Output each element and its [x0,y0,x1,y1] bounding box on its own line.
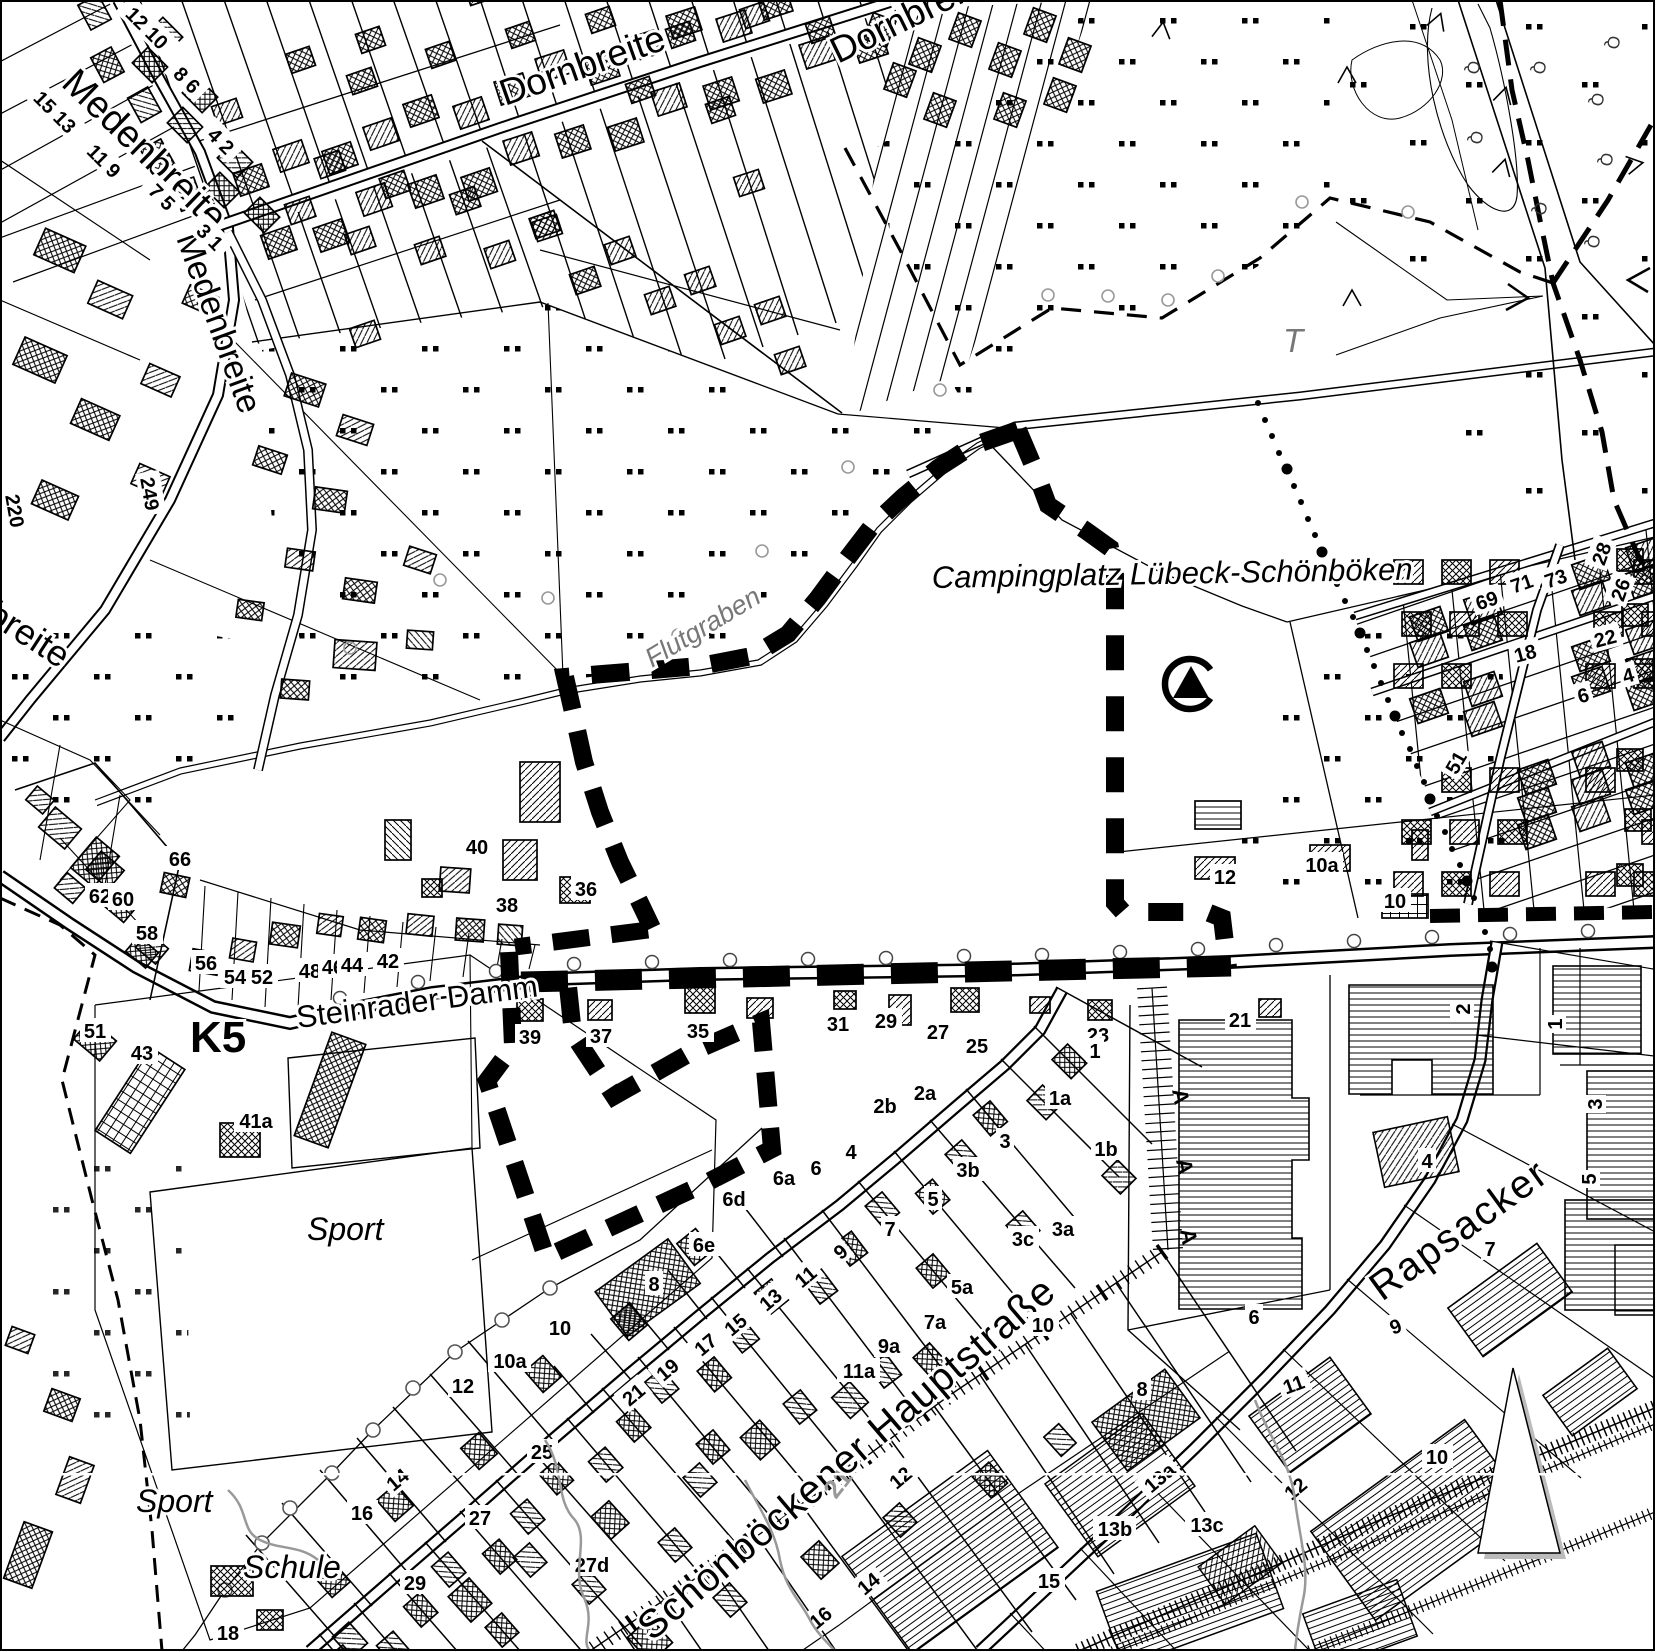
svg-text:58: 58 [136,923,158,945]
svg-text:3: 3 [1585,1098,1607,1109]
svg-text:52: 52 [251,967,273,989]
svg-text:29: 29 [875,1011,897,1033]
svg-text:Schule: Schule [243,1549,341,1585]
svg-text:42: 42 [377,951,399,973]
svg-text:2: 2 [1453,1003,1475,1014]
svg-text:8: 8 [1136,1379,1147,1401]
svg-text:10: 10 [1384,891,1406,913]
svg-text:39: 39 [519,1027,541,1049]
svg-text:1a: 1a [1049,1088,1072,1110]
svg-text:16: 16 [351,1503,373,1525]
svg-text:12: 12 [1214,867,1236,889]
svg-text:27: 27 [469,1508,491,1530]
svg-text:48: 48 [299,961,321,983]
svg-text:29: 29 [404,1573,426,1595]
svg-text:36: 36 [575,879,597,901]
svg-text:25: 25 [531,1442,553,1464]
svg-text:K5: K5 [190,1013,246,1062]
svg-text:7: 7 [884,1219,895,1241]
svg-text:10a: 10a [1305,855,1339,877]
svg-text:51: 51 [84,1021,106,1043]
svg-text:13b: 13b [1098,1519,1132,1541]
svg-text:40: 40 [466,837,488,859]
svg-text:3b: 3b [956,1160,979,1182]
svg-text:6d: 6d [722,1189,745,1211]
svg-text:10a: 10a [493,1351,527,1373]
svg-text:13c: 13c [1190,1515,1223,1537]
svg-text:66: 66 [169,849,191,871]
svg-text:11a: 11a [843,1361,876,1383]
svg-text:4: 4 [1421,1151,1433,1173]
svg-text:1b: 1b [1094,1139,1117,1161]
svg-text:12: 12 [452,1376,474,1398]
svg-text:56: 56 [195,953,217,975]
svg-text:2b: 2b [873,1096,896,1118]
svg-text:15: 15 [1038,1571,1060,1593]
svg-text:Sport: Sport [307,1211,385,1247]
svg-text:4: 4 [845,1142,857,1164]
svg-text:3: 3 [999,1131,1010,1153]
svg-text:T: T [1283,322,1306,359]
svg-text:5: 5 [1579,1173,1601,1184]
svg-text:6a: 6a [773,1168,796,1190]
svg-text:43: 43 [131,1043,153,1065]
svg-text:60: 60 [112,889,134,911]
svg-text:9a: 9a [878,1336,901,1358]
svg-text:35: 35 [687,1021,709,1043]
svg-text:3a: 3a [1052,1219,1075,1241]
svg-text:6e: 6e [693,1235,715,1257]
svg-text:5a: 5a [951,1277,974,1299]
svg-text:10: 10 [549,1318,571,1340]
svg-text:1: 1 [1089,1041,1100,1063]
svg-text:7a: 7a [924,1312,947,1334]
svg-text:5: 5 [927,1189,938,1211]
svg-text:44: 44 [341,955,364,977]
svg-text:31: 31 [827,1014,849,1036]
svg-text:37: 37 [590,1026,612,1048]
svg-text:27: 27 [927,1022,949,1044]
svg-text:18: 18 [217,1623,239,1645]
svg-text:54: 54 [224,967,247,989]
svg-text:10: 10 [1032,1315,1054,1337]
svg-text:38: 38 [496,895,518,917]
svg-text:10: 10 [1426,1447,1448,1469]
svg-text:41a: 41a [239,1111,273,1133]
svg-text:21: 21 [1229,1010,1251,1032]
svg-text:3c: 3c [1012,1229,1034,1251]
svg-text:1: 1 [1545,1018,1567,1029]
svg-text:62: 62 [89,886,111,908]
svg-text:6: 6 [1248,1307,1259,1329]
svg-text:8: 8 [648,1274,659,1296]
svg-text:2a: 2a [914,1083,937,1105]
svg-text:7: 7 [1484,1239,1495,1261]
svg-text:6: 6 [810,1158,821,1180]
svg-text:Sport: Sport [136,1483,214,1519]
svg-text:25: 25 [966,1036,988,1058]
